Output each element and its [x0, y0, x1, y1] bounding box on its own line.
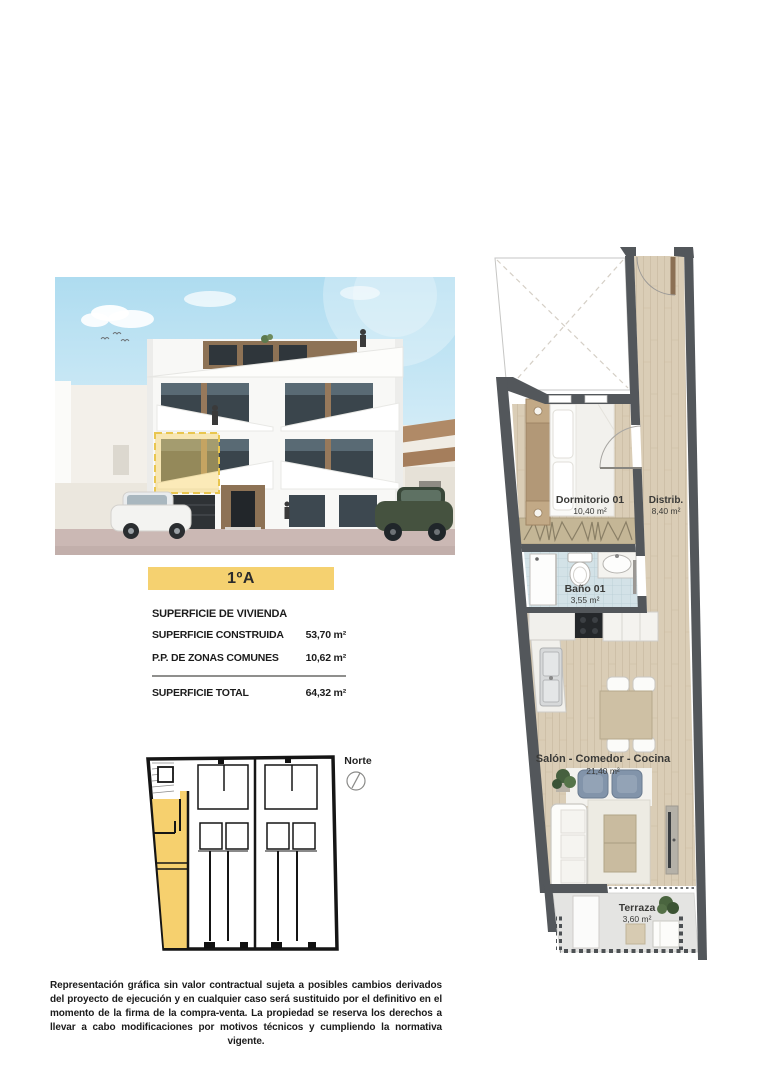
room-area-distribuidor: 8,40 m²	[652, 506, 681, 516]
row-label: P.P. DE ZONAS COMUNES	[152, 652, 279, 664]
building-render-image	[55, 277, 455, 555]
table-row: SUPERFICIE CONSTRUIDA 53,70 m²	[152, 629, 346, 641]
window	[549, 396, 571, 403]
room-label-bano: Baño 01	[565, 583, 606, 595]
terrace-chair	[653, 921, 679, 947]
north-label: Norte	[344, 755, 372, 767]
north-compass-icon: Norte	[334, 752, 382, 798]
bathroom-sliding-door	[633, 560, 637, 594]
total-label: SUPERFICIE TOTAL	[152, 687, 249, 699]
key-plan	[140, 750, 350, 960]
sofa	[551, 804, 587, 888]
disclaimer-text: Representación gráfica sin valor contrac…	[50, 979, 442, 1049]
unit-label: 1ºA	[227, 570, 255, 588]
table-total-row: SUPERFICIE TOTAL 64,32 m²	[152, 687, 346, 699]
table-divider	[152, 675, 346, 677]
unit-highlight-box	[155, 433, 219, 493]
main-building-facade	[147, 329, 403, 530]
terrace-railing	[679, 916, 685, 950]
row-value: 53,70 m²	[306, 629, 346, 641]
dining-set	[600, 677, 655, 752]
row-label: SUPERFICIE CONSTRUIDA	[152, 629, 284, 641]
table-row: P.P. DE ZONAS COMUNES 10,62 m²	[152, 652, 346, 664]
terrace-railing	[560, 949, 696, 955]
floor-plan: Dormitorio 01 10,40 m² Distrib. 8,40 m² …	[488, 244, 710, 966]
stair-core	[158, 767, 173, 782]
sink	[598, 552, 636, 578]
row-value: 10,62 m²	[306, 652, 346, 664]
brochure-page: 1ºA SUPERFICIE DE VIVIENDA SUPERFICIE CO…	[0, 0, 764, 1080]
room-area-dormitorio: 10,40 m²	[573, 506, 607, 516]
hallway-floor	[634, 256, 689, 613]
room-label-dormitorio: Dormitorio 01	[556, 494, 624, 506]
tv-unit	[666, 806, 678, 874]
room-area-salon: 21,40 m²	[586, 766, 620, 776]
cooktop	[575, 613, 603, 638]
surface-table: SUPERFICIE DE VIVIENDA SUPERFICIE CONSTR…	[152, 608, 346, 699]
toilet	[568, 553, 592, 586]
terrace-table	[626, 924, 645, 944]
room-label-distribuidor: Distrib.	[649, 495, 684, 506]
dining-table	[600, 691, 652, 739]
room-area-terraza: 3,60 m²	[623, 914, 652, 924]
room-label-terraza: Terraza	[619, 902, 656, 914]
room-label-salon: Salón - Comedor - Cocina	[536, 753, 671, 765]
room-area-bano: 3,55 m²	[571, 595, 600, 605]
terrace-storage	[573, 896, 599, 948]
unit-label-band: 1ºA	[148, 567, 334, 590]
coffee-table	[604, 815, 636, 872]
surface-table-header: SUPERFICIE DE VIVIENDA	[152, 608, 346, 620]
shower	[530, 554, 556, 605]
patio-void	[488, 244, 630, 390]
total-value: 64,32 m²	[306, 687, 346, 699]
window	[585, 396, 607, 403]
